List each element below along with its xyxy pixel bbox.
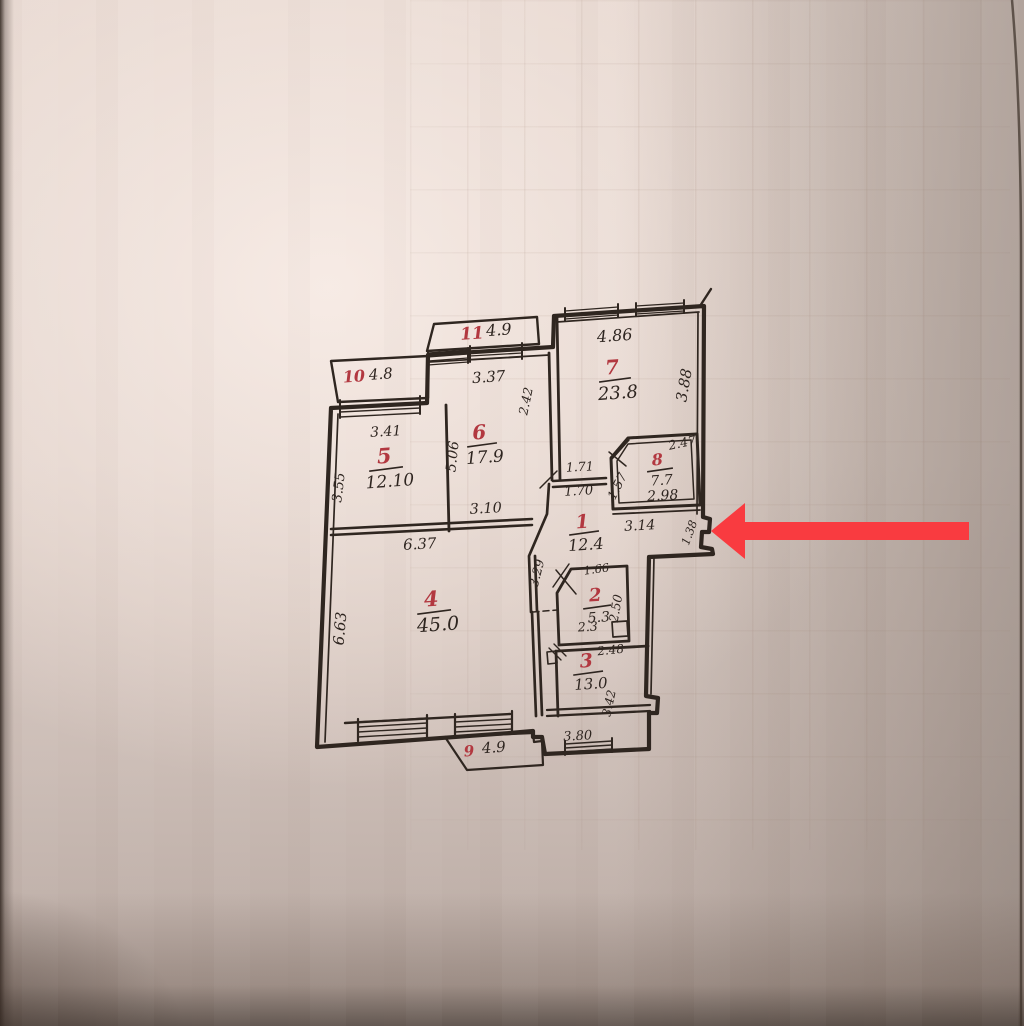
dim-room5-left: 3.55 xyxy=(329,472,349,504)
room-3-area: 13.0 xyxy=(574,674,609,694)
wall-below-room8 xyxy=(613,510,700,514)
dim-room3-top: 2.48 xyxy=(596,642,625,659)
dim-room6-bottom: 3.10 xyxy=(469,500,502,518)
room-10-number: 10 xyxy=(342,366,366,387)
dim-room8-bottom: 2.98 xyxy=(646,487,679,505)
dim-hall-upper: 1.71 xyxy=(565,458,594,474)
room-6-label: 6 17.9 xyxy=(463,419,504,470)
room-11-number: 11 xyxy=(460,323,485,345)
room-3-number: 3 xyxy=(579,650,594,673)
room-4-label: 4 45.0 xyxy=(413,584,460,637)
dim-room6-right: 2.42 xyxy=(515,386,536,417)
room-1-number: 1 xyxy=(575,511,590,534)
room-4-area: 45.0 xyxy=(415,612,460,637)
wall-room4-north xyxy=(331,519,532,535)
dim-room3-bottom: 3.80 xyxy=(563,728,593,744)
room-2-number: 2 xyxy=(587,585,602,607)
room-7-number: 7 xyxy=(604,355,620,380)
room-5-label: 5 12.10 xyxy=(363,441,415,493)
red-arrow-shaft xyxy=(745,522,969,540)
room3-south-wall xyxy=(547,705,650,716)
dim-hall-lower: 1.70 xyxy=(564,483,594,499)
room-11-label: 11 4.9 xyxy=(459,319,512,345)
red-arrow xyxy=(711,503,969,559)
room-labels: 1 12.4 2 5.3 3 13.0 4 45.0 5 xyxy=(342,319,674,760)
window-room4-right xyxy=(455,714,512,732)
photographed-document-page: 1 12.4 2 5.3 3 13.0 4 45.0 5 xyxy=(0,0,1024,1026)
room-9-number: 9 xyxy=(463,742,475,761)
room-11-area: 4.9 xyxy=(484,319,512,340)
dim-room1-right: 3.14 xyxy=(624,517,656,535)
room-7-label: 7 23.8 xyxy=(594,353,638,405)
red-arrow-head xyxy=(711,503,745,559)
room-7-area: 23.8 xyxy=(596,381,638,405)
room-4-number: 4 xyxy=(423,586,439,612)
room-5-number: 5 xyxy=(376,443,392,469)
dim-room5-top: 3.41 xyxy=(370,423,402,441)
room-10-label: 10 4.8 xyxy=(342,364,393,386)
dim-room2-bottom: 2.3 xyxy=(576,618,598,634)
room-9-area: 4.9 xyxy=(480,738,507,758)
room-5-area: 12.10 xyxy=(365,470,415,493)
room-1-area: 12.4 xyxy=(567,534,604,555)
floor-plan-drawing: 1 12.4 2 5.3 3 13.0 4 45.0 5 xyxy=(0,0,1024,1026)
corner-hook-mark xyxy=(700,289,711,306)
room-1-label: 1 12.4 xyxy=(566,510,605,555)
room-8-label: 8 7.7 xyxy=(646,449,675,490)
room-6-area: 17.9 xyxy=(465,446,504,469)
dim-room7-right: 3.88 xyxy=(672,367,696,403)
dim-room6-left: 5.06 xyxy=(443,440,462,473)
room-6-number: 6 xyxy=(471,420,487,445)
dim-room2-right: 2.50 xyxy=(606,593,626,624)
dim-room8-left: 1.57 xyxy=(604,470,630,502)
room-10-area: 4.8 xyxy=(367,364,393,384)
dim-room2-top: 1.66 xyxy=(583,560,610,577)
dim-room4-left: 6.63 xyxy=(330,611,351,646)
dim-room4-top: 6.37 xyxy=(403,534,438,554)
dim-room6-top: 3.37 xyxy=(471,367,506,387)
dim-arrow-target: 1.38 xyxy=(678,518,700,547)
room-8-number: 8 xyxy=(650,450,663,470)
page-edge-line xyxy=(1012,0,1021,1026)
dim-room7-top: 4.86 xyxy=(595,325,633,347)
room-9-label: 9 4.9 xyxy=(463,738,507,761)
